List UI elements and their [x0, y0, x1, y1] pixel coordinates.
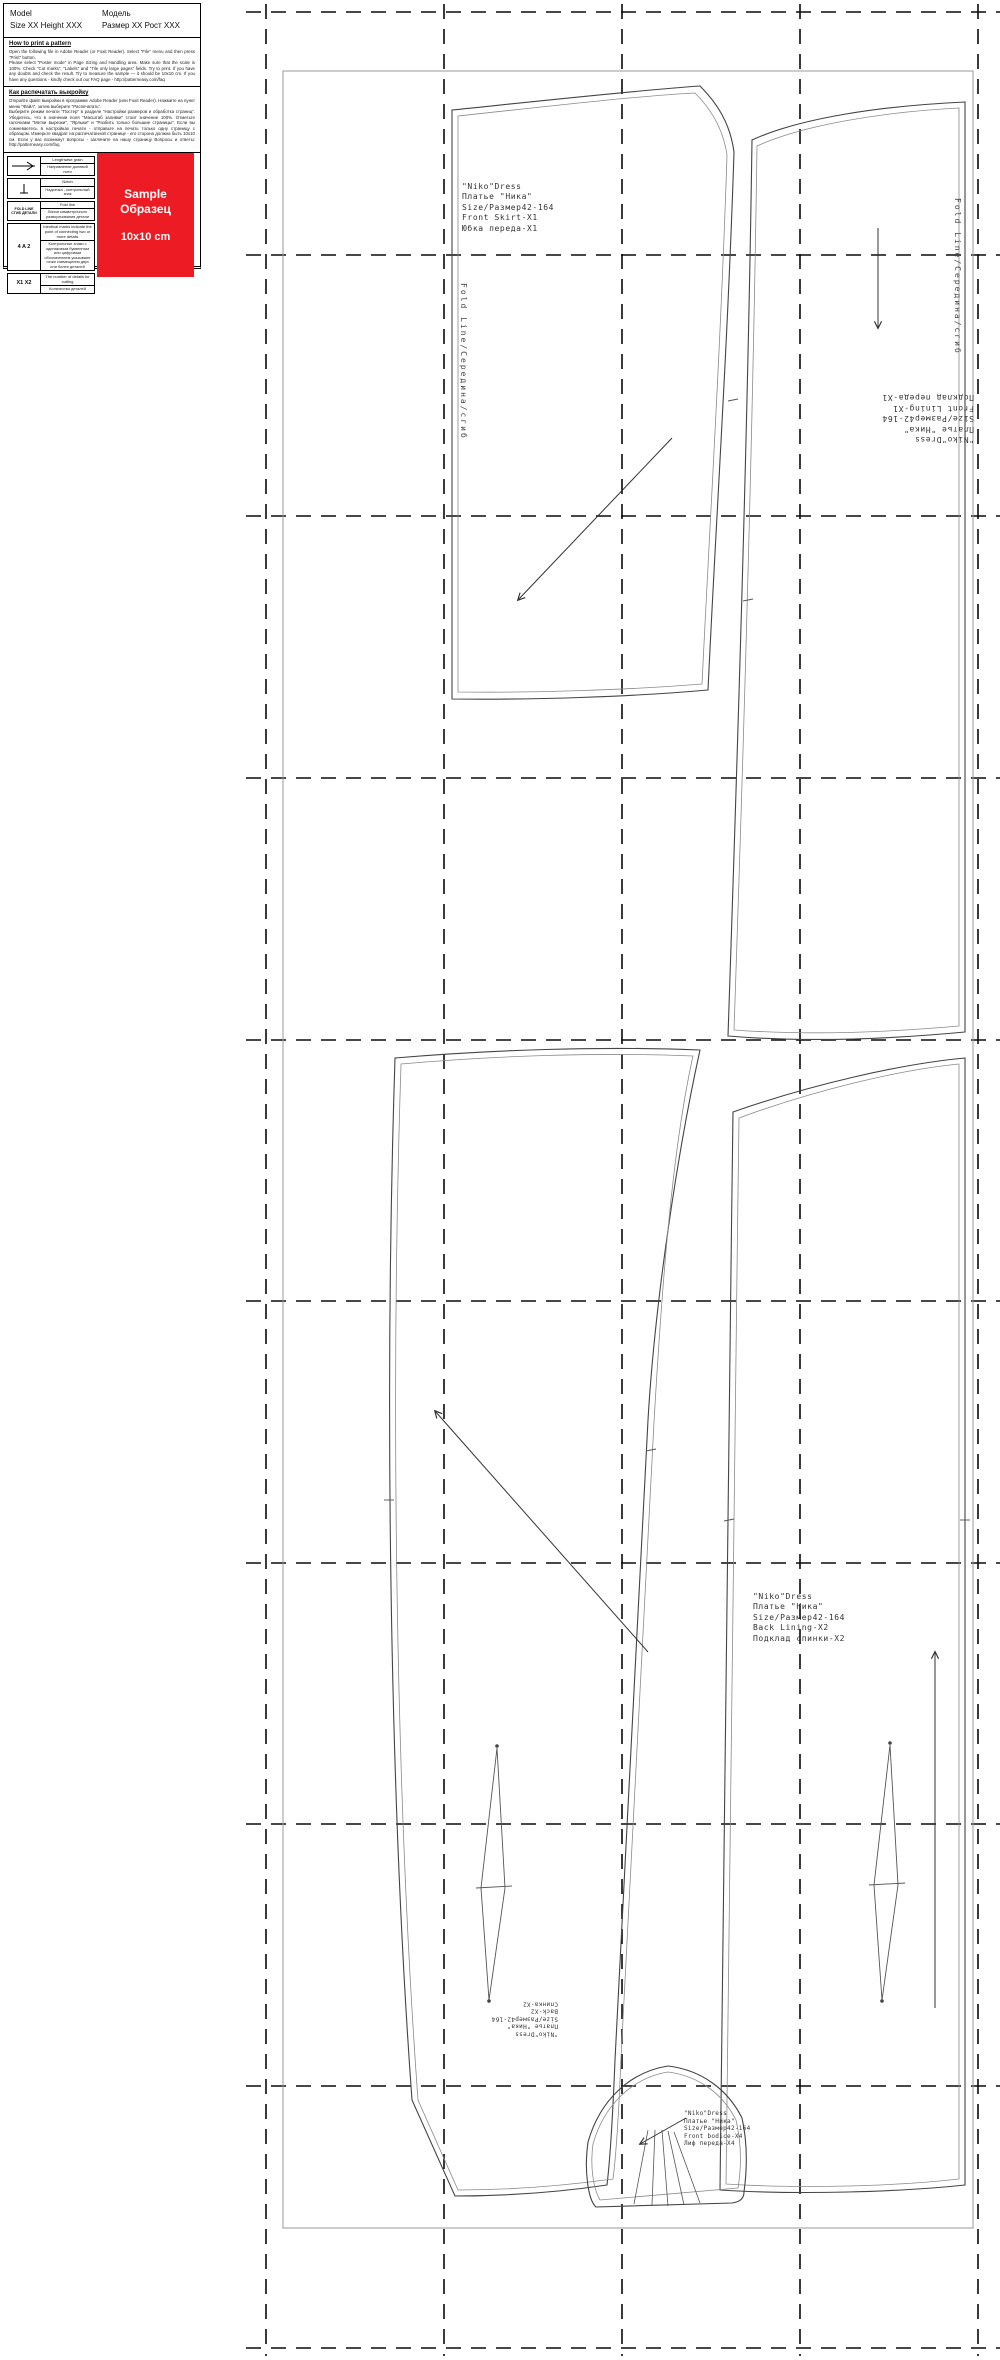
fold-line-symbol: FOLD LINE СГИБ ДЕТАЛИ	[8, 202, 41, 221]
back-label: "Niko"Dress Платье "Ника" Size/Размер42-…	[488, 2000, 558, 2038]
print-instructions-en-body: Open the following file in Adobe Reader …	[9, 49, 195, 82]
print-instructions-ru-body: Откройте файл выкройки в программе Adobe…	[9, 98, 195, 148]
front-lining-outline	[728, 102, 965, 1039]
sample-square: Sample Образец 10x10 cm	[97, 153, 194, 277]
sample-square-title: Sample Образец	[120, 187, 171, 217]
print-instructions-ru-title: Как распечатать выкройку	[9, 90, 195, 96]
notch-marks	[384, 399, 970, 1521]
model-size-ru: Модель Размер XX Рост XXX	[102, 8, 194, 31]
front-skirt-grainline-arrow	[518, 438, 672, 600]
quantity-symbol: X1 X2	[8, 274, 41, 293]
back-lining-dart	[869, 1741, 905, 2003]
legend-quantity-ru: Количество деталей	[41, 286, 94, 292]
info-box: Model Size XX Height XXX Модель Размер X…	[3, 3, 201, 269]
legend-notch-en: Notch	[41, 179, 94, 187]
back-dart	[476, 1744, 512, 2003]
legend-area: Lengthwise grain Направление долевой нит…	[4, 153, 200, 293]
legend-notch-ru: Надсечка - контрольный знак	[41, 187, 94, 198]
legend-foldline-ru: Линия симметричного разворачивания детал…	[41, 209, 94, 220]
print-instructions-en-title: How to print a pattern	[9, 41, 195, 47]
front-lining-label: "Niko"Dress Платье "Ника" Size/Размер42-…	[842, 392, 974, 444]
legend-grainline-ru: Направление долевой нити	[41, 164, 94, 175]
legend-quantity-en: The number of details for cutting	[41, 274, 94, 286]
front-bodice-label: "Niko"Dress Платье "Ника" Size/Размер42-…	[684, 2110, 751, 2148]
pattern-sheet-page: { "info_box": { "model_left": "Model\nSi…	[0, 0, 1000, 2360]
legend-row-grainline: Lengthwise grain Направление долевой нит…	[7, 156, 95, 177]
print-instructions-en: How to print a pattern Open the followin…	[4, 38, 200, 87]
model-header: Model Size XX Height XXX Модель Размер X…	[4, 4, 200, 38]
legend-foldline-en: Fold line	[41, 202, 94, 210]
grainline-symbol-icon	[8, 157, 41, 176]
back-lining-label: "Niko"Dress Платье "Ника" Size/Размер42-…	[753, 1592, 845, 1644]
legend-row-foldline: FOLD LINE СГИБ ДЕТАЛИ Fold line Линия си…	[7, 201, 95, 222]
legend-match-marks-ru: Контрольные знаки с одинаковым буквенным…	[41, 241, 94, 270]
symbol-legend: Lengthwise grain Направление долевой нит…	[7, 156, 95, 296]
sample-square-size: 10x10 cm	[121, 231, 171, 243]
legend-row-match-marks: 4 A 2 Identical marks indicate the point…	[7, 223, 95, 271]
legend-match-marks-en: Identical marks indicate the point of co…	[41, 224, 94, 241]
legend-row-quantity: X1 X2 The number of details for cutting …	[7, 273, 95, 294]
legend-row-notch: Notch Надсечка - контрольный знак	[7, 178, 95, 199]
back-grainline-arrow	[435, 1411, 648, 1652]
front-skirt-label: "Niko"Dress Платье "Ника" Size/Размер42-…	[462, 182, 554, 234]
model-size-en: Model Size XX Height XXX	[10, 8, 102, 31]
print-instructions-ru: Как распечатать выкройку Откройте файл в…	[4, 87, 200, 153]
front-skirt-outline	[452, 86, 734, 699]
fold-line-text-left: Fold Line/Середина/сгиб	[459, 283, 468, 440]
fold-line-text-right: Fold Line/Середина/сгиб	[953, 198, 962, 355]
legend-grainline-en: Lengthwise grain	[41, 157, 94, 165]
print-tile-grid	[246, 4, 1000, 2356]
notch-symbol-icon	[8, 179, 41, 198]
match-marks-symbol: 4 A 2	[8, 224, 41, 270]
